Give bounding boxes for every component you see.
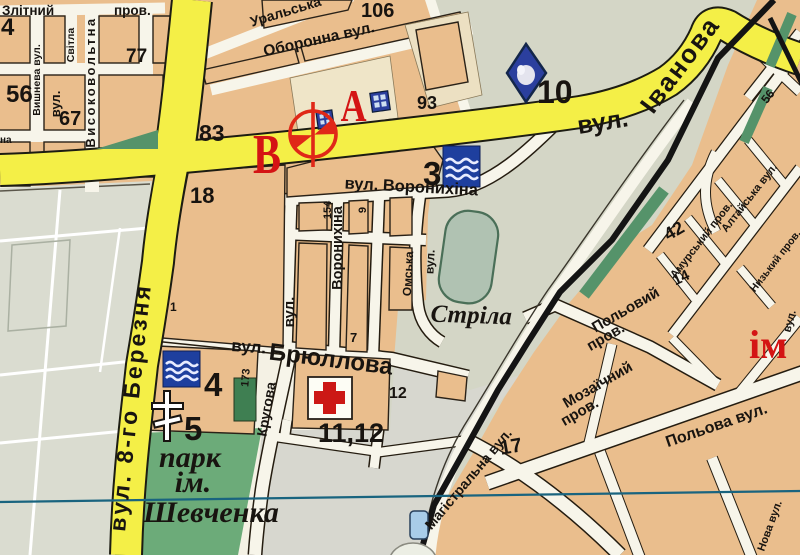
svg-text:A: A [341, 80, 367, 131]
svg-text:Світла: Світла [65, 28, 77, 63]
svg-text:12: 12 [389, 385, 407, 402]
svg-text:Омська: Омська [400, 251, 416, 297]
svg-text:Високовольтна: Високовольтна [83, 16, 98, 147]
svg-text:173: 173 [239, 368, 253, 387]
svg-text:Шевченка: Шевченка [142, 496, 279, 529]
svg-text:3: 3 [423, 155, 441, 192]
svg-text:пров.: пров. [114, 3, 151, 18]
svg-text:вул.: вул. [231, 336, 267, 357]
svg-text:17: 17 [498, 434, 524, 460]
svg-text:11,12: 11,12 [318, 418, 384, 448]
svg-text:9: 9 [357, 207, 369, 213]
svg-text:4: 4 [1, 14, 15, 41]
svg-text:18: 18 [190, 183, 214, 208]
svg-text:вул.: вул. [281, 297, 298, 328]
svg-text:83: 83 [199, 120, 225, 146]
svg-text:106: 106 [361, 0, 394, 22]
svg-text:Стріла: Стріла [430, 301, 512, 331]
svg-text:ім: ім [749, 322, 787, 367]
svg-text:4: 4 [204, 366, 223, 403]
svg-text:В: В [253, 123, 281, 185]
svg-text:вул.: вул. [48, 91, 63, 118]
svg-text:7: 7 [350, 330, 357, 345]
svg-text:154: 154 [322, 200, 334, 219]
svg-text:на: на [0, 135, 12, 146]
svg-text:ім.: ім. [175, 466, 211, 499]
svg-text:93: 93 [417, 93, 437, 113]
svg-text:1: 1 [170, 300, 177, 314]
svg-text:10: 10 [537, 74, 573, 110]
svg-text:77: 77 [126, 46, 147, 67]
svg-text:Вишнева вул.: Вишнева вул. [31, 44, 43, 116]
svg-text:вул.: вул. [422, 249, 437, 274]
svg-text:56: 56 [6, 81, 33, 108]
